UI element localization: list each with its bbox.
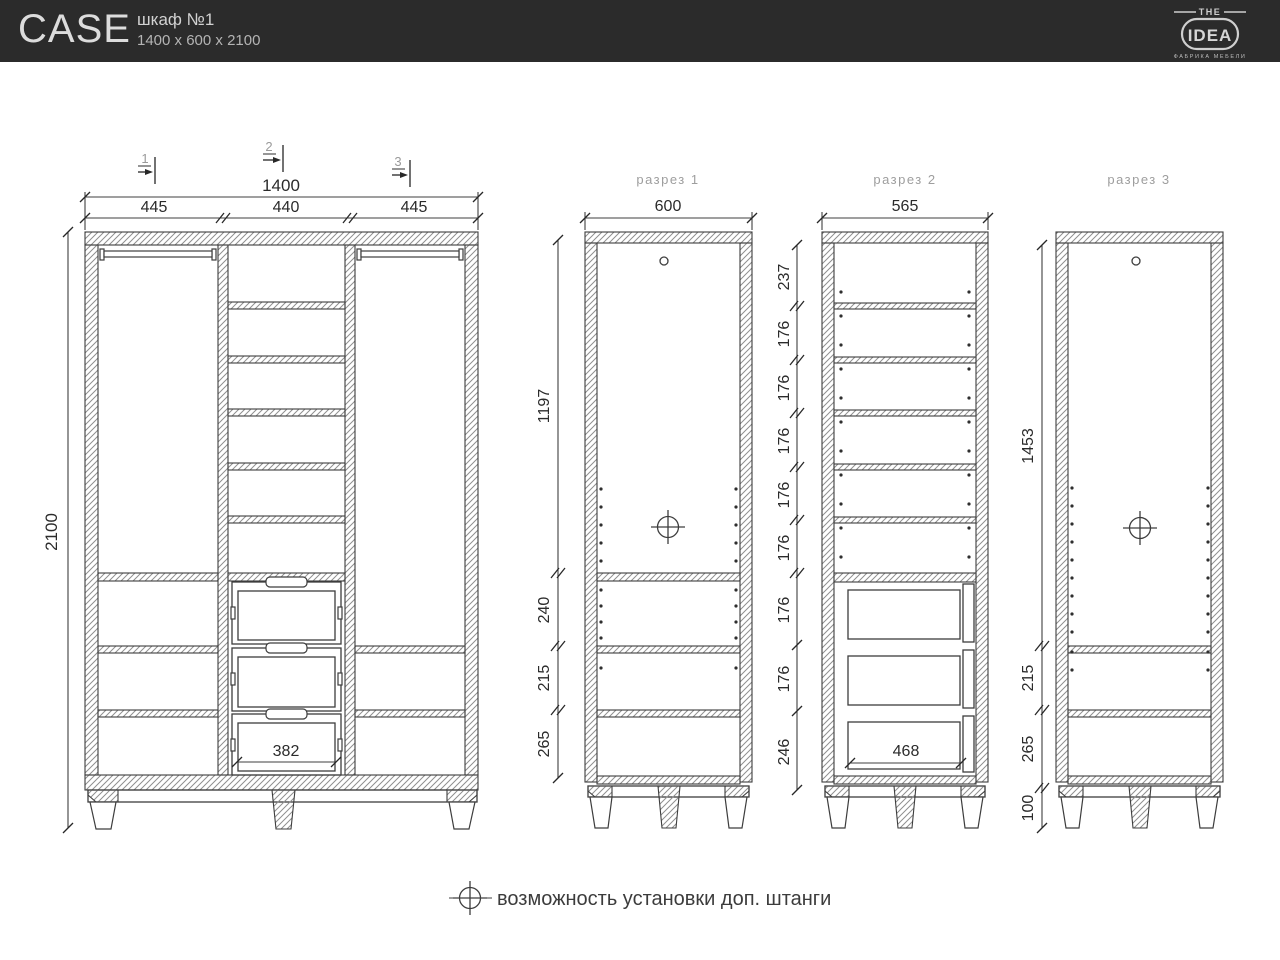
s1-dim-0: 1197 bbox=[536, 389, 553, 424]
section-marker-2-label: 2 bbox=[265, 139, 272, 154]
s3-dim-3: 100 bbox=[1020, 795, 1037, 822]
header: CASE шкаф №1 1400 x 600 x 2100 THE IDEA … bbox=[0, 0, 1280, 62]
dim-col-center: 440 bbox=[273, 199, 300, 216]
s2-dim-4: 176 bbox=[776, 482, 793, 509]
front-view-carcass bbox=[85, 232, 478, 790]
section-marker-2: 2 bbox=[263, 139, 283, 172]
section-marker-1-label: 1 bbox=[141, 151, 148, 166]
section-3-carcass bbox=[1056, 232, 1223, 784]
section-marker-3: 3 bbox=[392, 154, 410, 187]
hanging-rod-right bbox=[357, 249, 463, 260]
extra-rod-position-mark bbox=[651, 510, 685, 544]
s2-drawer-depth: 468 bbox=[893, 743, 920, 760]
section-view-2: разрез 2 bbox=[776, 172, 993, 828]
dim-col-left: 445 bbox=[141, 199, 168, 216]
page: 1400 445 440 445 2100 382 1 2 3 bbox=[0, 0, 1280, 960]
s2-dim-7: 176 bbox=[776, 666, 793, 693]
drawer-1 bbox=[231, 577, 342, 644]
dim-col-right: 445 bbox=[401, 199, 428, 216]
hanging-rod-left bbox=[100, 249, 216, 260]
legend: возможность установки доп. штанги bbox=[449, 881, 831, 915]
section-view-1: разрез 1 bbox=[536, 172, 757, 828]
brand-logo: THE IDEA ФАБРИКА МЕБЕЛИ bbox=[1150, 2, 1270, 62]
section-1-title: разрез 1 bbox=[636, 172, 699, 187]
section-2-legs bbox=[825, 786, 985, 828]
s2-dim-5: 176 bbox=[776, 535, 793, 562]
s2-dim-8: 246 bbox=[776, 739, 793, 766]
front-view-shelves bbox=[98, 302, 465, 717]
section-marker-3-label: 3 bbox=[394, 154, 401, 169]
s3-dim-2: 265 bbox=[1020, 736, 1037, 763]
section-3-legs bbox=[1059, 786, 1220, 828]
dim-total-height: 2100 bbox=[42, 513, 61, 551]
section-view-3: разрез 3 bbox=[1020, 172, 1223, 833]
s1-dim-2: 215 bbox=[536, 665, 553, 692]
s2-dim-2: 176 bbox=[776, 375, 793, 402]
s2-dim-3: 176 bbox=[776, 428, 793, 455]
section-1-legs bbox=[588, 786, 749, 828]
model-name: шкаф №1 bbox=[137, 10, 214, 30]
s2-dim-6: 176 bbox=[776, 597, 793, 624]
front-view-legs bbox=[88, 790, 477, 829]
section-3-title: разрез 3 bbox=[1107, 172, 1170, 187]
s3-dim-0: 1453 bbox=[1020, 428, 1037, 464]
drawer-3 bbox=[231, 709, 342, 775]
dim-total-width: 1400 bbox=[262, 176, 300, 195]
technical-drawing: 1400 445 440 445 2100 382 1 2 3 bbox=[0, 0, 1280, 960]
product-name: CASE bbox=[18, 6, 131, 52]
s2-dim-0: 237 bbox=[776, 264, 793, 291]
logo-main-text: IDEA bbox=[1188, 26, 1233, 45]
section-marker-1: 1 bbox=[138, 151, 155, 184]
drawer-2 bbox=[231, 643, 342, 711]
section-2-title: разрез 2 bbox=[873, 172, 936, 187]
section-1-carcass bbox=[585, 232, 752, 784]
s3-dim-1: 215 bbox=[1020, 665, 1037, 692]
s1-dim-1: 240 bbox=[536, 597, 553, 624]
section-1-dimension-ticks bbox=[551, 213, 757, 783]
logo-tagline: ФАБРИКА МЕБЕЛИ bbox=[1174, 54, 1247, 60]
extra-rod-position-mark bbox=[1123, 511, 1157, 545]
front-view-dimension-lines bbox=[68, 192, 478, 828]
rod-hole bbox=[1132, 257, 1140, 265]
model-size: 1400 x 600 x 2100 bbox=[137, 32, 260, 49]
legend-note: возможность установки доп. штанги bbox=[497, 888, 831, 910]
front-view-dimension-ticks bbox=[63, 192, 483, 833]
front-view: 1400 445 440 445 2100 382 1 2 3 bbox=[42, 139, 483, 833]
logo-top-text: THE bbox=[1199, 7, 1222, 17]
s2-dim-1: 176 bbox=[776, 321, 793, 348]
s1-dim-3: 265 bbox=[536, 731, 553, 758]
dim-drawer-width: 382 bbox=[273, 743, 300, 760]
section-2-depth: 565 bbox=[892, 198, 919, 215]
section-1-depth: 600 bbox=[655, 198, 682, 215]
rod-hole bbox=[660, 257, 668, 265]
